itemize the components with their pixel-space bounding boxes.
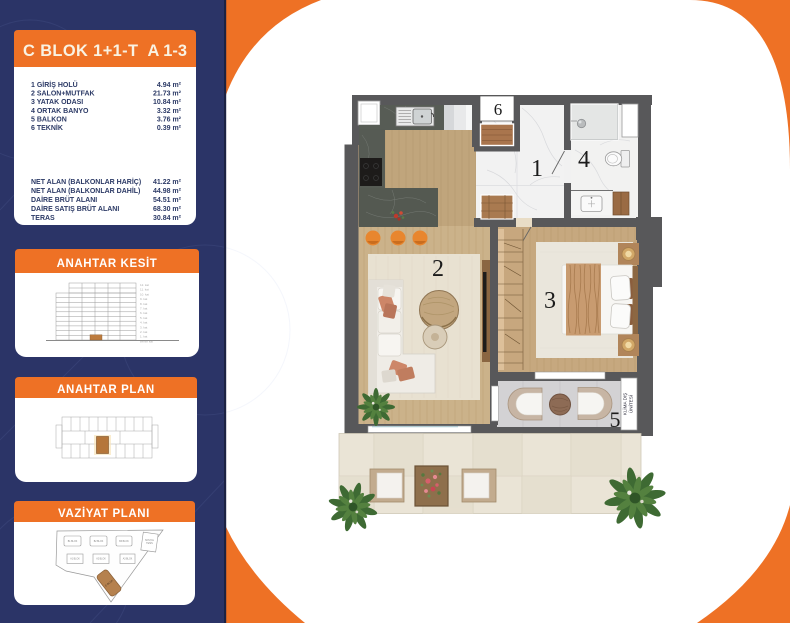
- svg-text:B2 BLOK: B2 BLOK: [94, 541, 104, 543]
- svg-text:NET ALAN (BALKONLAR DAHİL): NET ALAN (BALKONLAR DAHİL): [31, 187, 140, 195]
- svg-text:10.84 m²: 10.84 m²: [153, 99, 182, 106]
- svg-text:6. kat: 6. kat: [140, 311, 148, 315]
- svg-text:DAİRE BRÜT ALANI: DAİRE BRÜT ALANI: [31, 195, 97, 204]
- svg-text:C BLOK 1+1-T: C BLOK 1+1-T: [23, 42, 138, 60]
- svg-text:5 BALKON: 5 BALKON: [31, 116, 67, 123]
- svg-text:ANAHTAR PLAN: ANAHTAR PLAN: [57, 384, 155, 396]
- svg-text:21.73 m²: 21.73 m²: [153, 91, 182, 98]
- svg-text:9. kat: 9. kat: [140, 297, 148, 301]
- svg-text:44.98 m²: 44.98 m²: [153, 188, 182, 195]
- svg-text:SOSYAL: SOSYAL: [145, 539, 155, 542]
- svg-text:A2 BLOK: A2 BLOK: [96, 558, 106, 561]
- svg-text:30.84 m²: 30.84 m²: [153, 215, 182, 222]
- svg-text:1 GİRİŞ HOLÜ: 1 GİRİŞ HOLÜ: [31, 80, 78, 89]
- svg-text:VAZİYAT PLANI: VAZİYAT PLANI: [58, 507, 150, 520]
- svg-text:11. kat: 11. kat: [140, 288, 149, 292]
- svg-text:4 ORTAK BANYO: 4 ORTAK BANYO: [31, 108, 89, 115]
- svg-text:zemin kat: zemin kat: [140, 339, 153, 343]
- svg-text:1. kat: 1. kat: [140, 335, 148, 339]
- svg-text:2 SALON+MUTFAK: 2 SALON+MUTFAK: [31, 91, 95, 98]
- svg-text:KLİMA DIŞ: KLİMA DIŞ: [622, 393, 628, 415]
- svg-text:5: 5: [610, 407, 621, 432]
- svg-text:4.94 m²: 4.94 m²: [157, 82, 182, 89]
- svg-text:4. kat: 4. kat: [140, 321, 148, 325]
- svg-text:41.22 m²: 41.22 m²: [153, 179, 182, 186]
- svg-text:54.51 m²: 54.51 m²: [153, 197, 182, 204]
- svg-text:3. kat: 3. kat: [140, 325, 148, 329]
- svg-text:6 TEKNİK: 6 TEKNİK: [31, 124, 63, 132]
- svg-text:68.30 m²: 68.30 m²: [153, 206, 182, 213]
- svg-text:TESİS: TESİS: [146, 542, 153, 545]
- svg-text:2: 2: [432, 256, 444, 282]
- svg-text:A 1-3: A 1-3: [148, 42, 187, 60]
- svg-text:3: 3: [544, 288, 556, 314]
- svg-text:ANAHTAR KESİT: ANAHTAR KESİT: [57, 257, 158, 270]
- svg-text:0.39 m²: 0.39 m²: [157, 125, 182, 132]
- svg-text:TERAS: TERAS: [31, 215, 55, 222]
- svg-text:10. kat: 10. kat: [140, 292, 149, 296]
- svg-text:B3 BLOK: B3 BLOK: [119, 541, 129, 543]
- svg-text:A1 BLOK: A1 BLOK: [70, 558, 80, 561]
- svg-text:3.32 m²: 3.32 m²: [157, 108, 182, 115]
- svg-text:5. kat: 5. kat: [140, 316, 148, 320]
- svg-text:NET ALAN (BALKONLAR HARİÇ): NET ALAN (BALKONLAR HARİÇ): [31, 178, 141, 186]
- svg-text:3 YATAK ODASI: 3 YATAK ODASI: [31, 99, 83, 106]
- svg-text:7. kat: 7. kat: [140, 307, 148, 311]
- svg-text:12. kat: 12. kat: [140, 283, 149, 287]
- svg-text:4: 4: [578, 147, 590, 173]
- svg-text:DAİRE SATIŞ BRÜT ALANI: DAİRE SATIŞ BRÜT ALANI: [31, 204, 119, 213]
- svg-text:ÜNİTESİ: ÜNİTESİ: [628, 395, 634, 413]
- svg-text:2. kat: 2. kat: [140, 330, 148, 334]
- svg-text:3.76 m²: 3.76 m²: [157, 116, 182, 123]
- svg-text:8. kat: 8. kat: [140, 302, 148, 306]
- svg-text:6: 6: [494, 100, 503, 119]
- svg-text:A3 BLOK: A3 BLOK: [123, 558, 133, 561]
- svg-text:B1 BLOK: B1 BLOK: [68, 541, 78, 543]
- svg-text:1: 1: [531, 156, 543, 182]
